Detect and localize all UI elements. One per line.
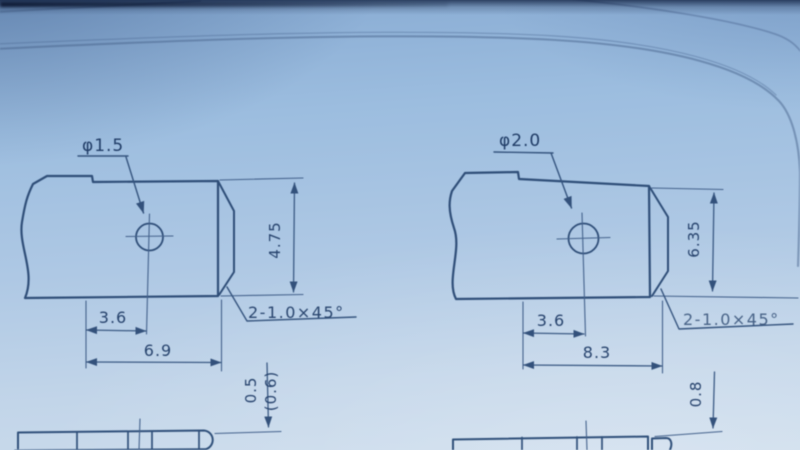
left-length-dim-text: 6.9 <box>144 341 172 360</box>
right-side-view <box>453 421 671 450</box>
extension-line-bottom <box>654 296 798 298</box>
left-part-outline <box>21 176 218 298</box>
left-chamfer-face <box>218 181 234 295</box>
right-hole-centerline-vertical <box>582 213 586 336</box>
adjacent-sheet-border-curves <box>0 0 800 266</box>
dimension-line <box>294 183 295 292</box>
left-height-dimension: 4.75 <box>220 178 303 296</box>
left-side-view-centerline <box>139 419 140 450</box>
left-drawing: φ1.5 4.75 3.6 6.9 <box>15 136 356 450</box>
dimension-arrow-down <box>713 372 715 428</box>
left-side-view-outline <box>15 431 213 450</box>
dimension-line <box>524 365 663 366</box>
right-hole-offset-dimension: 3.6 <box>523 302 584 369</box>
left-thickness-ref-dim-text: (0.6) <box>262 371 280 412</box>
right-side-view-end-notch <box>652 438 671 450</box>
left-chamfer-callout: 2-1.0×45° <box>227 287 356 322</box>
left-chamfer-label: 2-1.0×45° <box>248 303 345 322</box>
right-part-outline <box>450 172 650 299</box>
right-chamfer-face <box>649 186 668 296</box>
technical-drawing-photo: φ1.5 4.75 3.6 6.9 <box>0 0 800 450</box>
left-side-view <box>15 419 281 450</box>
left-hole-centerline-horizontal <box>126 236 173 237</box>
drawing-canvas: φ1.5 4.75 3.6 6.9 <box>0 0 800 450</box>
left-thickness-dimension: 0.5 (0.6) <box>242 363 280 427</box>
dimension-line <box>524 333 585 334</box>
right-hole-offset-dim-text: 3.6 <box>537 311 565 330</box>
right-side-view-centerline <box>586 421 587 450</box>
right-hole-diameter-label: φ2.0 <box>499 131 541 151</box>
sheet-top-edge-line <box>0 1 200 12</box>
extension-line-bottom <box>221 295 303 297</box>
left-hole-diameter-label: φ1.5 <box>82 136 124 156</box>
left-height-dim-text: 4.75 <box>266 221 284 258</box>
right-hole-centerline-horizontal <box>557 238 610 240</box>
right-length-dim-text: 8.3 <box>583 343 611 362</box>
dimension-line <box>87 362 222 363</box>
right-drawing: φ2.0 6.35 3.6 8.3 <box>450 131 798 450</box>
left-hole-offset-dimension: 3.6 <box>86 301 146 368</box>
right-thickness-dimension: 0.8 <box>655 372 722 437</box>
left-hole-offset-dim-text: 3.6 <box>99 308 127 327</box>
right-height-dim-text: 6.35 <box>685 220 703 257</box>
right-side-view-extension-line <box>655 432 722 437</box>
extension-line-top <box>652 188 723 190</box>
right-side-view-outline <box>453 437 648 450</box>
right-height-dimension: 6.35 <box>652 188 798 298</box>
dimension-line <box>713 193 715 291</box>
sheet-border-curve-outer-twin <box>0 32 776 95</box>
left-side-view-extension-line <box>215 432 281 434</box>
right-chamfer-label: 2-1.0×45° <box>683 310 780 329</box>
left-hole-leader-arrow <box>126 157 144 213</box>
sheet-border-curve-inner <box>538 0 800 57</box>
extension-line-top <box>220 178 303 180</box>
right-hole-label-underline <box>494 152 553 153</box>
left-thickness-dim-text: 0.5 <box>242 377 260 404</box>
right-thickness-dim-text: 0.8 <box>687 381 705 408</box>
dimension-line <box>87 330 147 331</box>
left-hole-centerline-vertical <box>147 214 150 334</box>
right-chamfer-callout: 2-1.0×45° <box>661 289 793 329</box>
